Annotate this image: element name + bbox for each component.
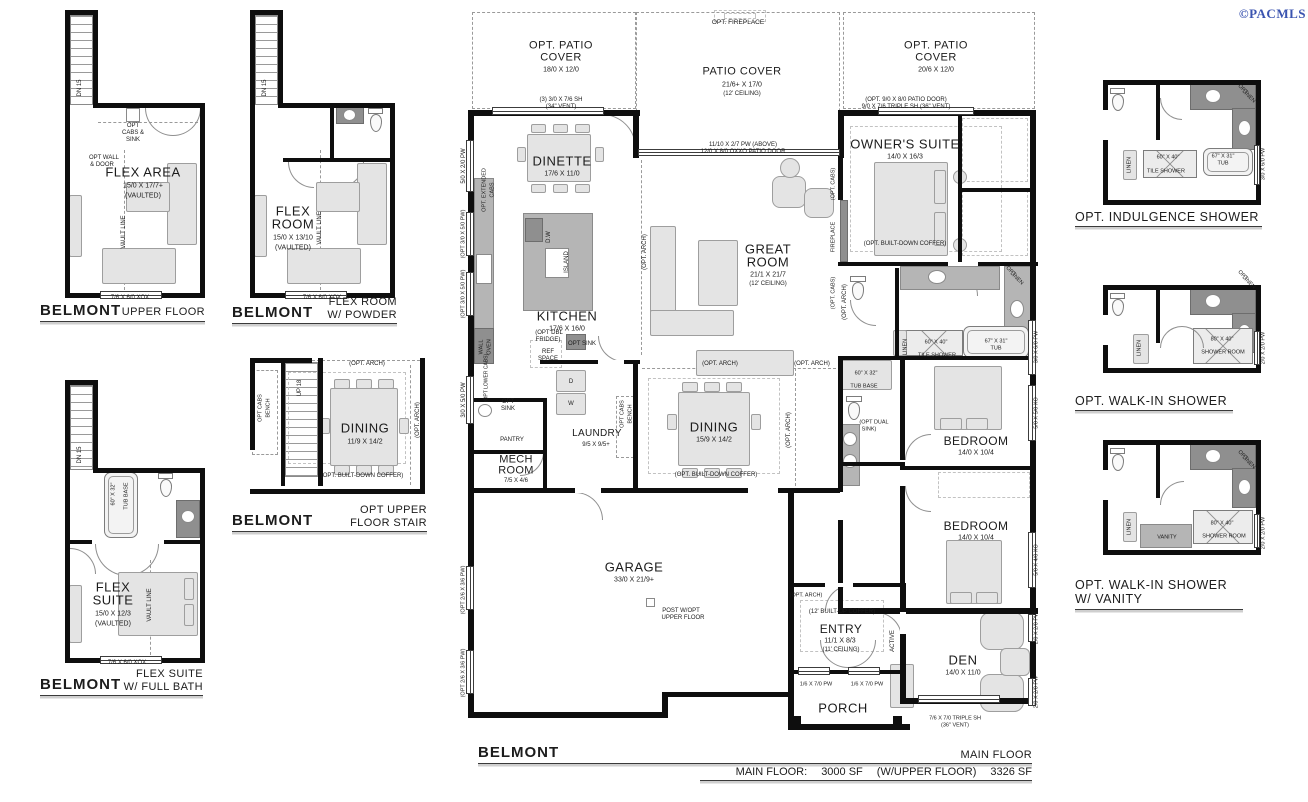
plan-brand: BELMONT [232,512,313,529]
furniture [1133,334,1149,364]
wall [200,103,205,298]
fixture [1190,289,1256,315]
plan-subtitle-2: W/ FULL BATH [124,681,203,694]
dashed-outline [962,118,1028,182]
plan-annotation: (OPT DUAL [859,420,888,426]
furniture [527,134,591,182]
wall-opening [1103,470,1108,500]
toilet-bowl [852,282,865,300]
window [798,667,830,675]
footer-brand: BELMONT [478,744,559,761]
toilet [850,276,866,300]
furniture [378,379,394,389]
door-swing [173,108,201,136]
furniture [678,392,750,466]
shower [905,330,963,356]
dashed-line [410,365,411,485]
furniture [650,310,734,336]
furniture [595,147,604,162]
room-bedroom-1: BEDROOM [944,435,1009,447]
fixture [1190,84,1256,110]
plan-annotation: OPT [1236,270,1248,282]
window [1254,145,1260,185]
furniture [726,468,742,478]
toilet [1110,88,1125,111]
footer-area-total: 3326 SF [990,766,1032,778]
wall [838,155,843,200]
wall [893,716,902,725]
plan-annotation: PANTRY [500,437,524,443]
wall [93,10,98,108]
furniture [1123,150,1137,180]
footer-area-main: 3000 SF [821,766,863,778]
plan-annotation: 7/6 X 7/0 TRIPLE SH [929,716,981,722]
plan-annotation: (OPT. ARCH) [786,412,792,448]
wall [633,360,638,492]
toilet-bowl [1112,299,1124,316]
plan-subtitle: FLEX SUITE [136,668,203,681]
wall [838,356,1036,360]
dashed-outline [843,12,1035,109]
shower [1143,150,1197,178]
fixture [1205,294,1221,308]
plan-annotation: & DOOR [90,162,114,168]
window [466,140,474,192]
plan-subtitle-2: FLOOR STAIR [350,517,427,530]
plan-annotation: (OPT. ARCH) [349,361,385,367]
bathtub [104,472,138,538]
furniture [356,465,372,475]
wall [543,398,547,490]
room-great-room: GREAT [745,243,791,256]
window [638,149,840,156]
shower [1193,510,1253,544]
wall [788,583,794,678]
fixture [566,334,586,350]
wall [662,692,794,697]
wall [93,103,205,108]
wall [65,380,70,663]
plan-annotation: SINK) [862,427,877,433]
plan-subtitle-2: W/ VANITY [1075,592,1142,606]
plan-subtitle: OPT. INDULGENCE SHOWER [1075,210,1259,224]
plan-subtitle: OPT UPPER [360,504,427,517]
door-swing [288,162,314,188]
furniture [698,240,738,306]
toilet-bowl [160,479,172,497]
wall [278,103,395,108]
wall [1256,80,1261,205]
footer-area-row: MAIN FLOOR: 3000 SF (W/UPPER FLOOR) 3326… [700,766,1032,781]
window [1028,678,1036,706]
fixture [843,432,857,446]
fixture [474,328,494,364]
wall [1103,80,1108,205]
wall [250,489,425,494]
wall [1156,285,1160,343]
furniture [69,195,82,257]
stairs [255,15,278,105]
wall [281,358,285,486]
furniture [167,163,197,245]
window [100,656,162,664]
plan-annotation: 1/6 X 7/0 PW [800,682,832,688]
wall [468,488,840,493]
furniture [980,674,1024,712]
window [878,107,974,115]
plan-brand: BELMONT [232,304,313,321]
wall-opening [575,488,601,493]
footer-title-row: BELMONT MAIN FLOOR [478,744,1032,764]
wall [838,520,843,612]
plan-annotation: ROOM [272,218,314,231]
window [466,212,474,256]
window [466,566,474,610]
wall [1156,80,1160,140]
furniture [976,592,998,604]
door-swing [850,300,876,326]
wall [788,724,910,730]
furniture [287,248,361,284]
dashed-line [312,360,420,361]
plan-graphic: FLEX SUITE W/ FULL BATH [124,668,203,693]
wall [900,466,1036,470]
window [848,667,880,675]
door-swing [848,640,876,668]
furniture [316,182,360,212]
dashed-outline [616,396,634,458]
window [1254,331,1260,365]
plan-annotation: 14/0 X 10/4 [958,450,994,457]
plan-annotation: (12' CEILING) [749,281,787,287]
plan-title-walkin: OPT. WALK-IN SHOWER [1075,394,1233,411]
furniture [704,468,720,478]
toilet [368,108,383,132]
wall [250,10,255,298]
window [100,291,162,299]
window [466,650,474,694]
fixture [476,254,492,284]
toilet-bowl [370,114,382,132]
stairs [70,385,93,470]
plan-annotation: SINK [501,406,515,412]
plan-graphic: FLEX ROOM W/ POWDER [327,296,397,321]
plan-annotation: (OPT. ARCH) [642,234,648,270]
wall-opening [948,262,978,266]
fixture [525,218,543,242]
door-swing [145,108,173,136]
fixture [478,404,492,417]
door-swing [520,452,544,476]
dashed-outline [724,13,756,19]
fixture [181,510,195,523]
plan-graphic: OPT UPPER FLOOR STAIR [350,504,427,529]
furniture [399,418,409,434]
bathtub [1203,148,1253,176]
plan-annotation: 9/5 X 9/5+ [582,442,610,448]
furniture [254,195,267,257]
wall [200,468,205,663]
stairs [70,15,93,105]
wall [283,158,395,162]
window [1028,614,1036,642]
footer-area-label: MAIN FLOOR: [736,766,808,778]
plan-brand: BELMONT [40,302,121,319]
fixture [1190,444,1256,470]
furniture [804,188,834,218]
plan-title-flex-suite: BELMONT FLEX SUITE W/ FULL BATH [40,668,203,696]
furniture [751,414,761,430]
footer-floor-label: MAIN FLOOR [961,749,1032,761]
window [1028,385,1036,441]
fixture [1238,479,1251,495]
plan-annotation: 33/0 X 21/9+ [614,577,654,584]
wall-opening [825,583,853,587]
wall [1103,550,1261,555]
plan-subtitle: OPT. WALK-IN SHOWER [1075,578,1227,592]
room-flex-room: FLEX [276,205,311,218]
furniture [575,124,590,133]
wall [788,490,794,587]
plan-annotation: 15/0 X 13/10 [273,235,313,242]
furniture [556,393,586,415]
wall-opening [748,488,778,493]
furniture [696,350,794,376]
furniture [940,418,962,430]
wall-opening [1103,110,1108,140]
furniture [553,124,568,133]
plan-annotation: 1/6 X 7/0 PW [851,682,883,688]
wall [1103,200,1261,205]
door-swing [1160,481,1184,505]
wall [318,358,323,486]
plan-brand: BELMONT [40,676,121,693]
window [918,695,1000,703]
door-swing [905,434,931,460]
plan-annotation: 2/0 X 2/0 PW [1261,517,1267,549]
furniture [934,170,946,204]
door-swing [905,486,931,512]
counter [900,266,1000,290]
toilet [846,396,862,420]
plan-annotation: OPT WALL [89,155,119,161]
room-den: DEN [949,654,978,667]
furniture [517,147,526,162]
wall [838,462,905,466]
counter [1140,524,1192,548]
furniture [1123,512,1137,542]
wall [65,10,70,298]
room-garage: GARAGE [605,561,664,574]
wall [420,358,425,494]
wall [792,716,801,725]
room-kitchen: KITCHEN [537,310,598,323]
door-swing [70,548,96,574]
plan-title-indulgence: OPT. INDULGENCE SHOWER [1075,210,1262,227]
room-porch: PORCH [818,702,867,715]
window [1028,320,1036,375]
furniture [357,163,387,245]
fixture [1010,300,1024,318]
plan-annotation: (OPT. CABS) [831,277,837,309]
furniture [378,465,394,475]
footer-area-with: (W/UPPER FLOOR) [877,766,977,778]
plan-subtitle: FLEX ROOM [329,296,397,309]
door-swing [876,612,902,638]
plan-subtitle-2: W/ POWDER [327,309,397,322]
plan-annotation: UPPER FLOOR [661,615,704,621]
furniture [556,370,586,392]
toilet-bowl [1112,454,1124,471]
wall-opening [598,360,624,364]
wall [390,103,395,298]
toilet [158,473,173,497]
furniture [531,184,546,193]
plan-title-opt-stair: BELMONT OPT UPPER FLOOR STAIR [232,504,427,532]
furniture [934,212,946,246]
plan-annotation: 2/0 X 2/0 PW [1261,332,1267,364]
furniture [682,382,698,392]
dashed-outline [938,472,1030,498]
wall [838,262,1038,266]
wall [93,468,205,473]
furniture [950,592,972,604]
wall [330,107,334,162]
window [492,107,604,115]
furniture [184,578,194,600]
plan-graphic: UPPER FLOOR [122,306,205,319]
wall [250,358,255,450]
wall-opening [92,540,164,544]
plan-annotation: (OPT. ARCH) [842,284,848,320]
furniture [531,124,546,133]
fixture [1205,449,1221,463]
wall [468,398,546,402]
furniture [184,604,194,626]
toilet [1110,293,1125,316]
wall [895,268,899,358]
fixture [343,109,356,121]
furniture [334,465,350,475]
wall [1103,80,1261,85]
dashed-outline [636,12,840,152]
wall [900,486,905,612]
plan-title-upper-floor: BELMONT UPPER FLOOR [40,302,205,322]
door-swing [1160,326,1182,348]
wall [468,712,668,718]
window [1254,514,1260,548]
plan-annotation: POST W/OPT [662,608,700,614]
plan-subtitle: UPPER FLOOR [122,306,205,319]
furniture [126,182,170,212]
dashed-line [641,160,642,355]
toilet-bowl [1112,94,1124,111]
door-swing [602,114,636,148]
plan-annotation: FIREPLACE [831,222,837,253]
wall [958,188,1036,192]
wall [540,360,640,364]
fixture [1205,89,1221,103]
room-laundry: LAUNDRY [572,429,622,439]
furniture [667,414,677,430]
dashed-outline [962,190,1028,256]
plan-annotation: 17/6 X 16/0 [549,326,585,333]
furniture [726,382,742,392]
plan-annotation: (OPT. ARCH) [790,593,823,599]
plan-annotation: 3/0 X 6/0 PW [1261,148,1267,180]
wall [1156,440,1160,498]
furniture [553,184,568,193]
wall [93,380,98,473]
furniture [966,418,988,430]
door-swing [598,336,624,362]
dashed-line [795,368,796,486]
plan-title-flex-powder: BELMONT FLEX ROOM W/ POWDER [232,296,397,324]
door-swing [1160,98,1182,120]
wall [838,608,1038,614]
plan-annotation: 7/5 X 4/6 [504,478,528,484]
toilet-bowl [848,402,861,420]
window [1028,532,1036,588]
furniture [102,248,176,284]
furniture [840,360,892,390]
plan-annotation: CABS & [122,130,144,136]
furniture [980,612,1024,650]
window [466,376,474,424]
floor-plan-sheet: BELMONT UPPER FLOOR BELMONT FLEX ROOM W/… [0,0,1308,802]
furniture [780,158,800,178]
wall [900,356,905,460]
wall [468,450,546,454]
wall [1103,440,1261,445]
wall [1103,368,1261,373]
furniture [704,382,720,392]
plan-annotation: ROOM [747,256,789,269]
furniture [334,379,350,389]
fixture [126,108,140,122]
furniture [682,468,698,478]
window [466,272,474,316]
plan-annotation: 14/0 X 11/0 [945,670,980,677]
furniture [772,176,806,208]
toilet [1110,448,1125,471]
plan-annotation: (OPT. ARCH) [794,361,830,367]
plan-annotation: 21/1 X 21/7 [750,272,786,279]
wall-opening [1103,315,1108,345]
wall [838,358,843,492]
plan-title-walkin-vanity: OPT. WALK-IN SHOWER W/ VANITY [1075,578,1243,610]
fixture [1238,120,1251,136]
pacmls-copyright: ©PACMLS [1190,6,1306,22]
wall [1103,285,1261,290]
furniture [356,379,372,389]
fixture [840,200,848,262]
furniture [330,388,398,466]
door-swing [820,640,848,668]
plan-annotation: (36" VENT) [941,723,969,729]
plan-annotation: OPT [127,123,139,129]
dashed-outline [472,12,636,109]
fixture [928,270,946,284]
plan-subtitle: OPT. WALK-IN SHOWER [1075,394,1227,408]
wall-opening [900,612,906,634]
fixture [646,598,655,607]
door-swing [575,492,603,520]
plan-annotation: (OPT DBL [535,330,563,336]
plan-annotation: SINK [126,137,140,143]
wall [278,10,283,108]
room-bedroom-2: BEDROOM [944,520,1009,532]
